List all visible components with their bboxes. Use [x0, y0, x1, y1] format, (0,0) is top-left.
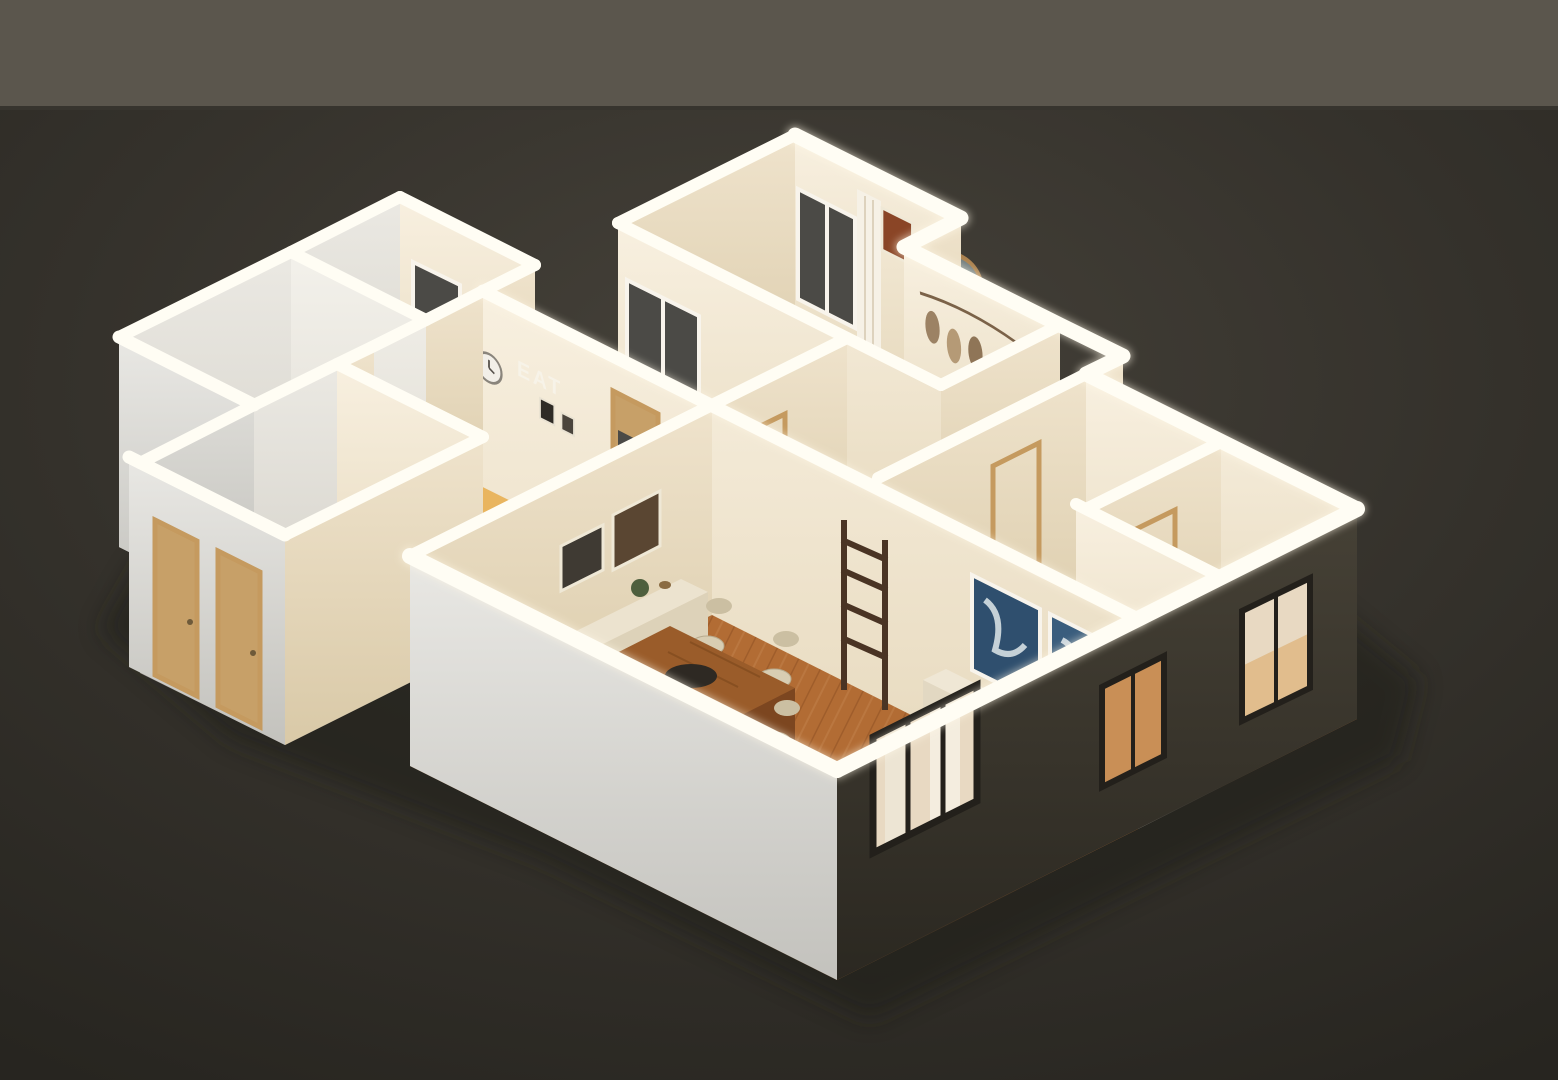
chair-back: [706, 598, 732, 614]
sideboard-plant: [631, 579, 649, 597]
entry-door-1: [155, 520, 197, 696]
chair-back: [773, 631, 799, 647]
backdrop-wall: [0, 0, 1558, 112]
sideboard-vase: [659, 581, 671, 589]
door-handle: [250, 650, 256, 656]
chair-back: [774, 700, 800, 716]
floor-plan-render: EAT: [0, 0, 1558, 1080]
screenshot-root: EAT: [0, 0, 1558, 1080]
entry-door-2: [218, 551, 260, 727]
door-handle: [187, 619, 193, 625]
